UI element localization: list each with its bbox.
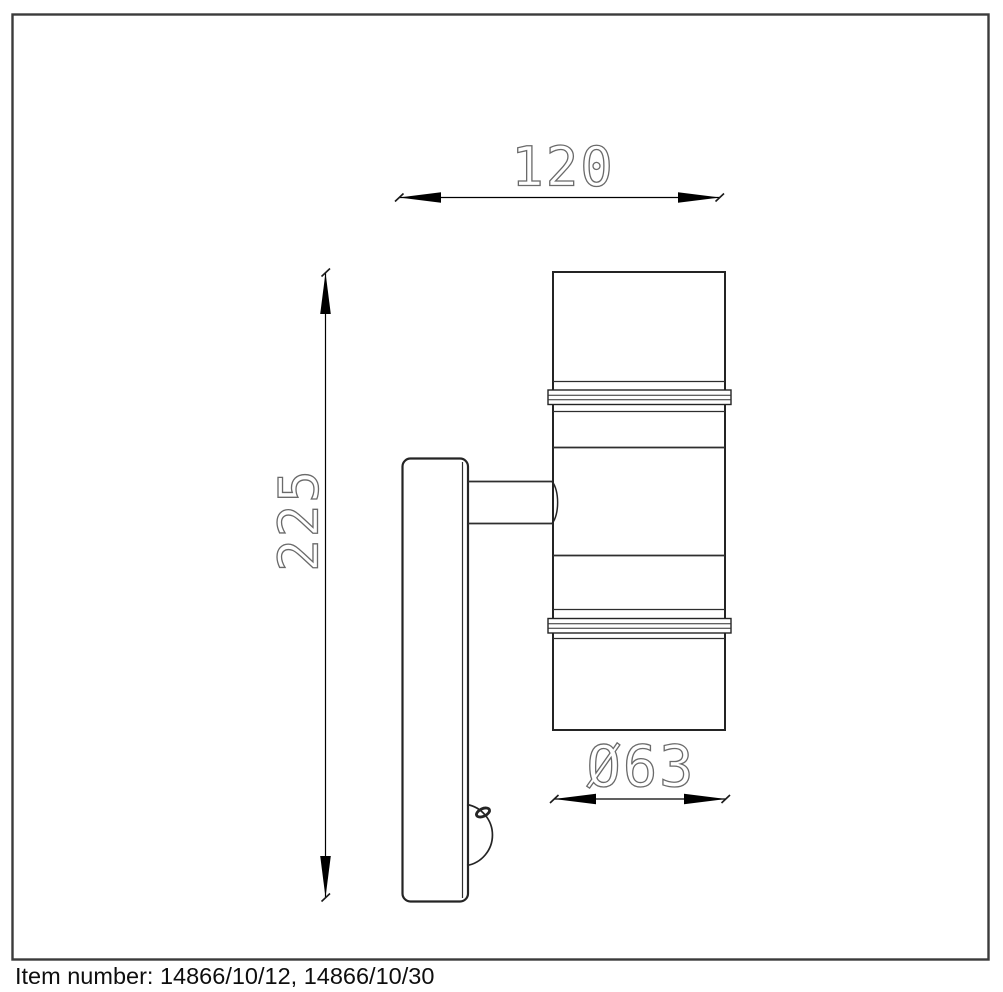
width-dimension-label: 120 — [511, 136, 615, 199]
upper-trim-ring — [548, 390, 731, 405]
item-number-caption: Item number: 14866/10/12, 14866/10/30 — [15, 963, 434, 989]
diameter-dimension: Ø63 — [550, 734, 730, 804]
wall-plate-outline — [403, 459, 469, 902]
drawing-border — [13, 15, 989, 960]
lamp-cylinder — [553, 272, 725, 730]
arrow-down-icon — [320, 856, 331, 898]
arrow-left-icon — [399, 192, 441, 203]
ring-outline — [548, 619, 731, 634]
height-dimension: 225 — [268, 269, 331, 902]
lamp-body — [548, 272, 731, 730]
ring-outline — [548, 390, 731, 405]
technical-drawing-page: 120 225 Ø63 Item number: 14866/10/12, 14… — [0, 0, 1003, 992]
arrow-right-icon — [678, 192, 720, 203]
dimension-drawing-canvas: 120 225 Ø63 Item number: 14866/10/12, 14… — [0, 0, 1003, 992]
height-dimension-label: 225 — [268, 468, 331, 572]
arrow-up-icon — [320, 273, 331, 315]
mounting-arm — [468, 482, 558, 524]
width-dimension: 120 — [395, 136, 724, 203]
diameter-dimension-label: Ø63 — [587, 734, 696, 800]
lower-trim-ring — [548, 619, 731, 634]
wall-plate — [403, 459, 493, 902]
